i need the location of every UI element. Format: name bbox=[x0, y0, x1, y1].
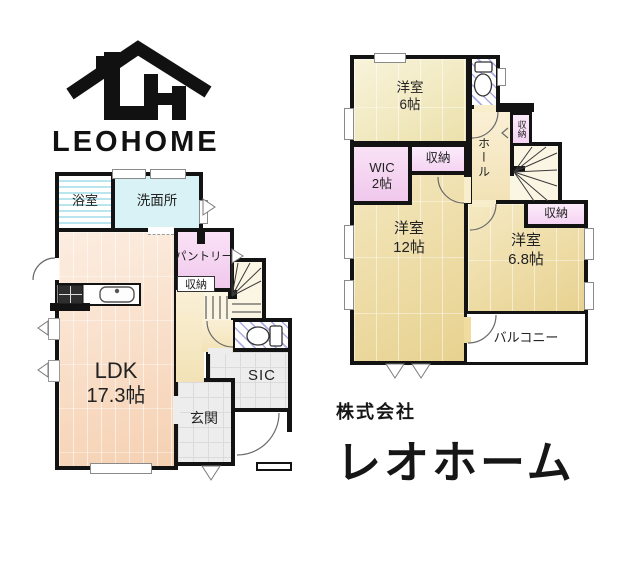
entrance-porch-step bbox=[256, 462, 292, 471]
label-washroom: 洗面所 bbox=[118, 192, 196, 210]
wall-stair-stub-2f bbox=[510, 166, 525, 172]
floorplan-document: LEOHOME 浴室 洗面所 パントリー 収納 LDK 17.3帖 玄関 SIC bbox=[0, 0, 640, 568]
leohome-logo: LEOHOME bbox=[52, 36, 242, 166]
window-bedroom68-right-2 bbox=[584, 282, 594, 310]
label-ldk: LDK 17.3帖 bbox=[58, 352, 174, 414]
opening-ldk-side-door bbox=[51, 258, 59, 280]
wall-kitchen-stub bbox=[50, 303, 90, 311]
opening-hall-bedroom12 bbox=[464, 177, 471, 203]
room-ldk bbox=[55, 228, 178, 470]
label-bedroom68-size: 6.8帖 bbox=[508, 251, 544, 270]
label-bedroom-6: 洋室 6帖 bbox=[360, 76, 460, 118]
wall-porch-stub bbox=[287, 408, 292, 432]
label-ldk-size: 17.3帖 bbox=[87, 384, 146, 409]
label-bedroom-68: 洋室 6.8帖 bbox=[478, 228, 574, 274]
room-toilet-1f bbox=[231, 318, 292, 352]
label-entrance: 玄関 bbox=[178, 410, 230, 427]
label-wic-size: 2帖 bbox=[372, 176, 392, 192]
company-name-block: 株式会社 レオホーム bbox=[336, 398, 626, 491]
company-prefix: 株式会社 bbox=[336, 398, 626, 424]
window-bedroom12-left-1 bbox=[344, 225, 354, 259]
label-wic-name: WIC bbox=[369, 160, 394, 176]
label-bedroom68-name: 洋室 bbox=[511, 232, 541, 251]
label-bedroom6-size: 6帖 bbox=[399, 97, 420, 114]
label-wic: WIC 2帖 bbox=[356, 156, 408, 196]
label-closet-by-wic: 収納 bbox=[412, 150, 464, 167]
opening-toilet2-door bbox=[474, 105, 496, 112]
label-ldk-name: LDK bbox=[95, 357, 138, 385]
company-name: レオホーム bbox=[336, 426, 626, 491]
room-toilet-2f bbox=[468, 55, 500, 109]
label-bedroom12-name: 洋室 bbox=[394, 220, 424, 239]
window-bedroom68-right-1 bbox=[584, 228, 594, 260]
label-hall-storage: 収納 bbox=[512, 114, 530, 144]
window-bedroom12-left-2 bbox=[344, 280, 354, 310]
label-pantry: パントリー bbox=[175, 250, 233, 265]
label-balcony: バルコニー bbox=[470, 330, 582, 346]
hallway-1f bbox=[176, 290, 204, 382]
window-bedroom6-top bbox=[374, 53, 406, 63]
label-sic: SIC bbox=[236, 367, 288, 385]
wall-pantry-stub bbox=[197, 228, 205, 244]
opening-washroom-door bbox=[148, 227, 174, 235]
opening-hall-sic bbox=[208, 348, 232, 354]
label-pantry-storage: 収納 bbox=[177, 276, 215, 292]
opening-stairs-hall2 bbox=[510, 176, 517, 200]
label-closet-68: 収納 bbox=[528, 205, 584, 222]
window-washroom-right bbox=[199, 200, 208, 224]
window-bedroom6-left bbox=[344, 108, 354, 140]
label-bedroom-12: 洋室 12帖 bbox=[360, 216, 458, 262]
window-washroom-top-1 bbox=[112, 169, 146, 179]
label-bath: 浴室 bbox=[60, 192, 110, 210]
window-toilet2-right bbox=[497, 68, 506, 86]
wall-stair-newel-1f bbox=[228, 290, 237, 299]
window-washroom-top-2 bbox=[150, 169, 186, 179]
label-hall-2f: ホール bbox=[474, 128, 492, 188]
staircase-2f bbox=[510, 142, 562, 204]
wall-step-2f bbox=[496, 103, 534, 112]
label-bedroom12-size: 12帖 bbox=[393, 239, 425, 258]
window-ldk-left-1 bbox=[48, 318, 60, 340]
window-ldk-bottom bbox=[90, 463, 152, 474]
logo-wordmark: LEOHOME bbox=[52, 126, 242, 159]
opening-hall-bedroom68 bbox=[472, 200, 496, 207]
label-bedroom6-name: 洋室 bbox=[397, 80, 424, 97]
leohome-house-icon bbox=[66, 36, 216, 124]
